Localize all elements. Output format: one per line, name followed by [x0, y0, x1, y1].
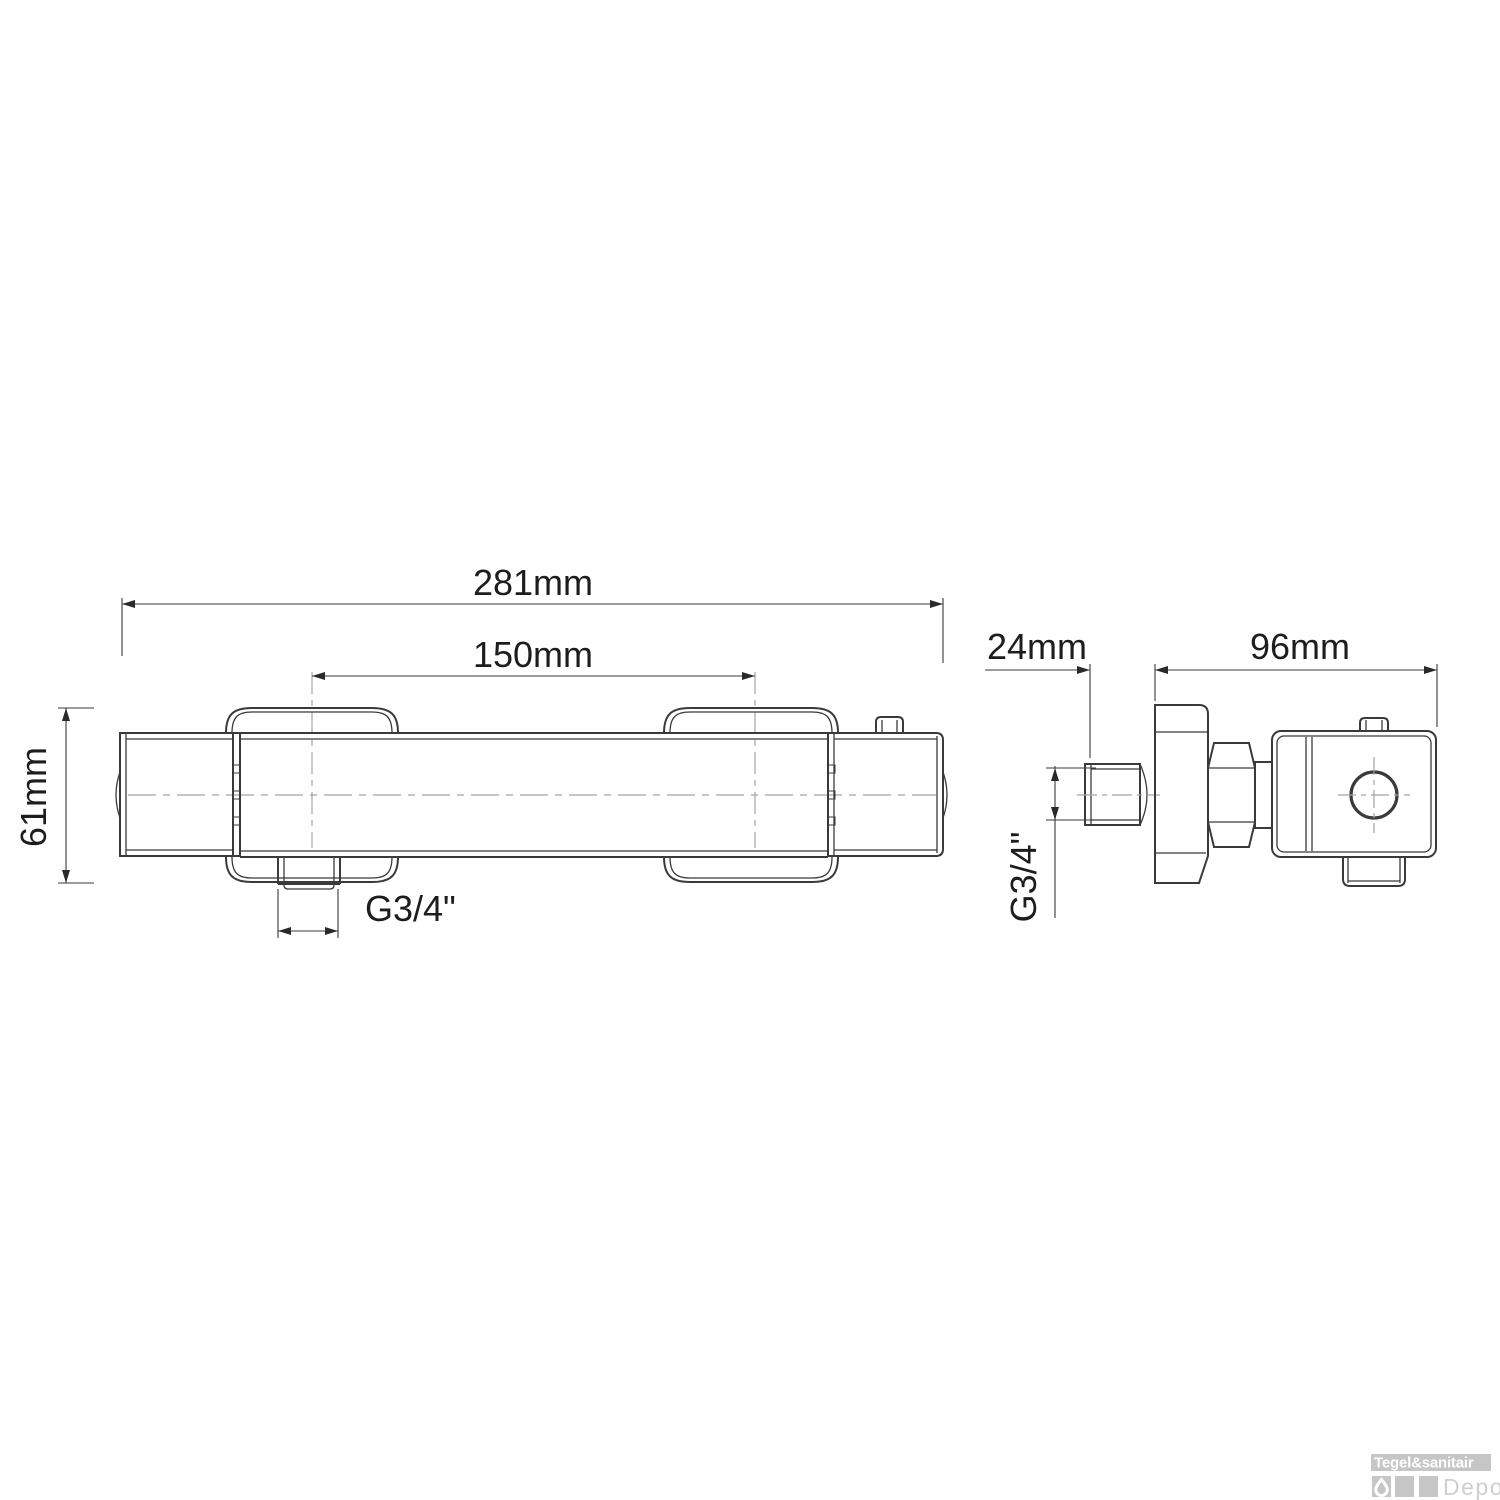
label-inlet-thread: G3/4" [1003, 832, 1044, 923]
dim-body-height [58, 708, 94, 883]
watermark-square-2 [1395, 1476, 1414, 1497]
label-hole-centers: 150mm [473, 634, 593, 675]
front-view [116, 672, 947, 889]
label-outlet-thread: G3/4" [365, 888, 456, 929]
watermark-sub-text: Depot [1443, 1474, 1500, 1500]
dim-outlet-thread [278, 889, 338, 938]
dim-inlet-thread [1046, 766, 1096, 918]
front-centerlines [128, 672, 936, 848]
handle-top-tab [876, 717, 903, 733]
wall-plate [1155, 705, 1208, 883]
bottom-outlet-front [278, 857, 340, 889]
hex-nut [1208, 743, 1255, 847]
dim-side-depths [985, 664, 1437, 758]
dimension-labels: 281mm 150mm 61mm G3/4" 24mm 96mm G3/4" [13, 562, 1350, 929]
side-view [1077, 705, 1436, 886]
bottom-outlet-side [1343, 857, 1405, 886]
inlet-nipple [1077, 764, 1160, 825]
watermark-brand-text: Tegel&sanitair [1374, 1455, 1474, 1472]
handle-side-tab [1360, 718, 1388, 731]
label-side-depth: 96mm [1250, 626, 1350, 667]
label-overall-width: 281mm [473, 562, 593, 603]
technical-drawing-page: 281mm 150mm 61mm G3/4" 24mm 96mm G3/4" T… [0, 0, 1500, 1500]
connector-stem [1255, 762, 1272, 828]
label-body-height: 61mm [13, 747, 54, 847]
dimension-drawing-svg: 281mm 150mm 61mm G3/4" 24mm 96mm G3/4" T… [0, 0, 1500, 1500]
label-inlet-depth: 24mm [987, 626, 1087, 667]
watermark-logo: Tegel&sanitair Depot [1371, 1454, 1500, 1500]
right-handle [828, 717, 947, 856]
watermark-square-3 [1419, 1476, 1438, 1497]
handle-side [1272, 718, 1436, 857]
